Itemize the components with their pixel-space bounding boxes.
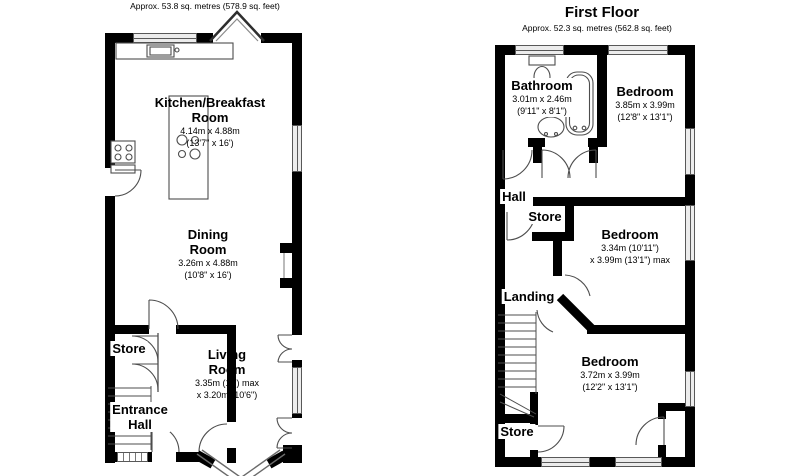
room-label-entrance-hall: Entrance Hall xyxy=(110,402,170,432)
room-dimensions: (12'2" x 13'1") xyxy=(580,381,640,393)
room-label-bedroom-rear: Bedroom 3.72m x 3.99m (12'2" x 13'1") xyxy=(580,354,640,393)
room-dimensions: (10'8" x 16') xyxy=(178,269,238,281)
room-dimensions: (12'8" x 13'1") xyxy=(615,111,675,123)
room-dimensions: 3.85m x 3.99m xyxy=(615,99,675,111)
room-label-bathroom: Bathroom 3.01m x 2.46m (9'11" x 8'1") xyxy=(509,78,574,117)
floorplan-canvas: Approx. 53.8 sq. metres (578.9 sq. feet)… xyxy=(0,0,800,476)
room-name: Entrance xyxy=(112,402,168,417)
first-floor-title: First Floor xyxy=(565,4,639,22)
room-dimensions: (13'7" x 16') xyxy=(155,137,266,149)
room-name: Living xyxy=(195,347,259,362)
room-name: Dining xyxy=(178,227,238,242)
room-label-store-gf: Store xyxy=(110,341,147,356)
room-dimensions: 3.01m x 2.46m xyxy=(511,93,572,105)
stairs-icon xyxy=(498,312,536,417)
room-label-hall: Hall xyxy=(500,189,528,204)
room-name: Bedroom xyxy=(615,84,675,99)
room-name: Hall xyxy=(112,417,168,432)
room-label-dining: Dining Room 3.26m x 4.88m (10'8" x 16') xyxy=(178,227,238,281)
basin-icon xyxy=(538,117,564,137)
first-floor-area: Approx. 52.3 sq. metres (562.8 sq. feet) xyxy=(522,23,672,34)
room-name: Bathroom xyxy=(511,78,572,93)
room-dimensions: 4.14m x 4.88m xyxy=(155,125,266,137)
room-dimensions: 3.34m (10'11") xyxy=(590,242,670,254)
room-label-bedroom-middle: Bedroom 3.34m (10'11") x 3.99m (13'1") m… xyxy=(590,227,670,266)
room-label-bedroom-front: Bedroom 3.85m x 3.99m (12'8" x 13'1") xyxy=(615,84,675,123)
ground-floor-area: Approx. 53.8 sq. metres (578.9 sq. feet) xyxy=(130,1,280,12)
kitchen-counter xyxy=(116,43,233,59)
room-name: Room xyxy=(155,110,266,125)
diagonal-wall xyxy=(560,297,592,329)
room-dimensions: 3.35m (11') max xyxy=(195,377,259,389)
room-dimensions: x 3.20m (10'6") xyxy=(195,389,259,401)
room-label-kitchen: Kitchen/Breakfast Room 4.14m x 4.88m (13… xyxy=(155,95,266,149)
bay-window xyxy=(197,450,285,476)
room-name: Kitchen/Breakfast xyxy=(155,95,266,110)
room-dimensions: 3.26m x 4.88m xyxy=(178,257,238,269)
room-label-store-lower: Store xyxy=(498,424,535,439)
room-name: Room xyxy=(178,242,238,257)
room-dimensions: 3.72m x 3.99m xyxy=(580,369,640,381)
room-name: Bedroom xyxy=(580,354,640,369)
room-label-store-upper: Store xyxy=(526,209,563,224)
room-dimensions: x 3.99m (13'1") max xyxy=(590,254,670,266)
canopy-zigzag-icon xyxy=(210,12,264,41)
room-label-living: Living Room 3.35m (11') max x 3.20m (10'… xyxy=(195,347,259,401)
room-name: Bedroom xyxy=(590,227,670,242)
cooker-icon xyxy=(111,141,135,173)
room-dimensions: (9'11" x 8'1") xyxy=(511,105,572,117)
room-label-landing: Landing xyxy=(502,289,557,304)
room-name: Room xyxy=(195,362,259,377)
